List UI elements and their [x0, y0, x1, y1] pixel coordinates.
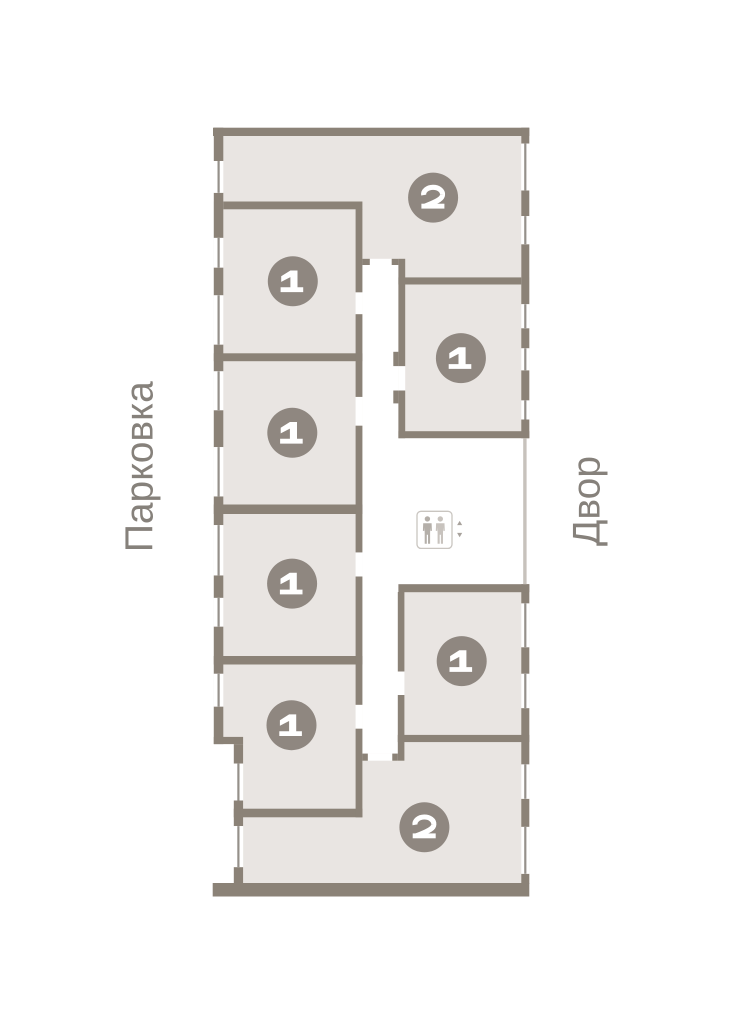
svg-text:Парковка: Парковка	[119, 381, 162, 552]
svg-text:Двор: Двор	[566, 456, 609, 546]
